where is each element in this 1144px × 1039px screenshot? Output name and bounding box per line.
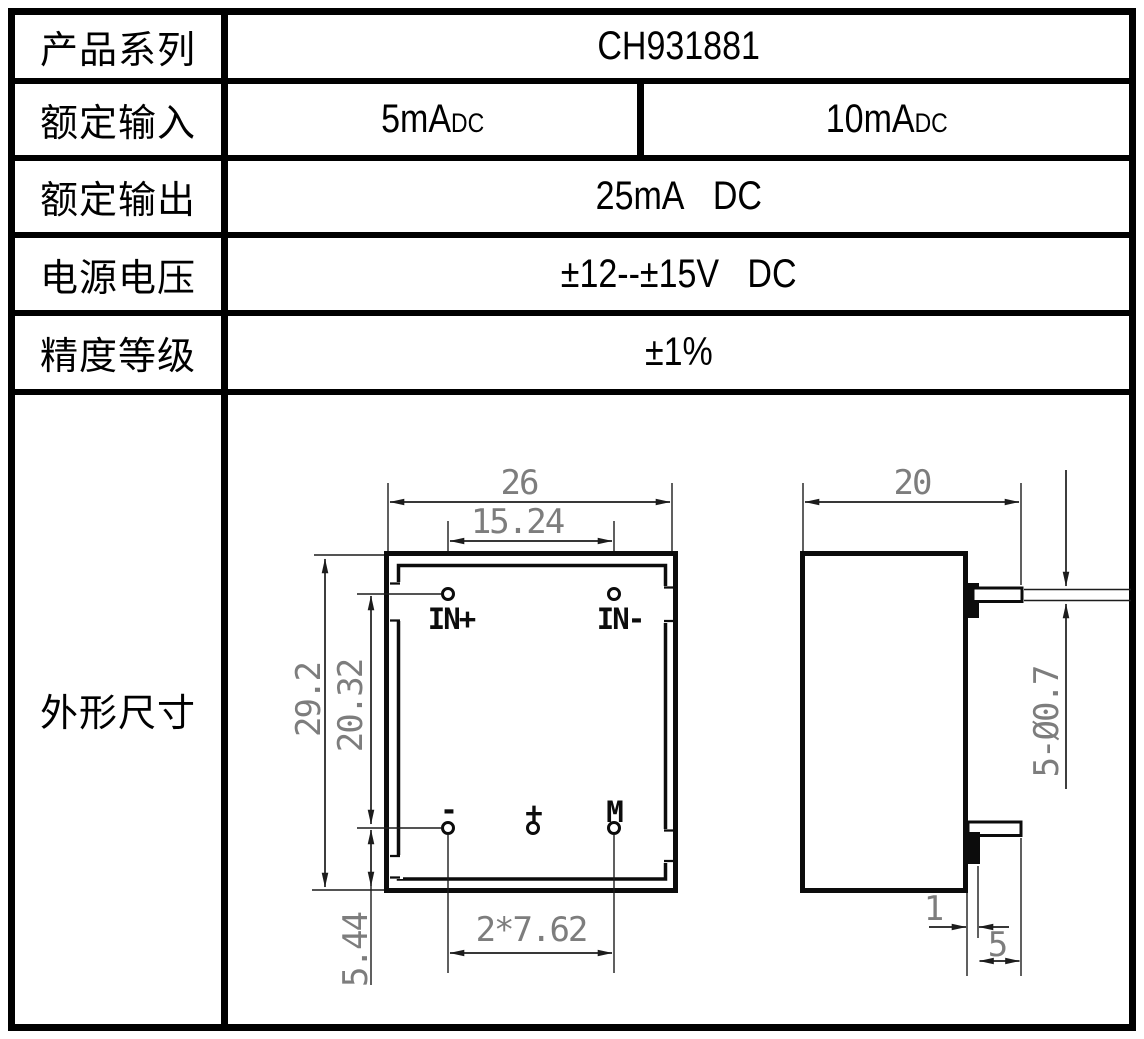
datasheet-page: 产品系列 额定输入 额定输出 电源电压 精度等级 外形尺寸 CH931881 5… [0, 0, 1144, 1039]
pin-label-m: M [606, 795, 623, 829]
front-top-pitch-dim-label: 15.24 [471, 502, 564, 542]
side-pin-offset-dim-label: 1 [924, 889, 943, 929]
side-pin-spec-dim-label: 5-Ø0.7 [1027, 667, 1067, 778]
front-view: 26 15.24 [289, 463, 676, 987]
outline-dimension-drawing: 26 15.24 [0, 0, 1144, 1039]
pin-hole-in-plus [443, 589, 454, 600]
front-bottom-offset-dim-label: 5.44 [336, 913, 376, 987]
side-top-pin [973, 588, 1022, 602]
front-bottom-pitch-dim-label: 2*7.62 [476, 910, 587, 950]
side-view: 20 5-Ø0.7 1 5 [803, 463, 1132, 976]
front-pin-gap-dim-label: 20.32 [331, 660, 371, 752]
pin-label-in-minus: IN- [597, 602, 643, 636]
side-depth-dim-label: 20 [894, 463, 931, 503]
side-body-outline [803, 554, 966, 891]
side-pin-length-dim-label: 5 [988, 925, 1006, 965]
front-height-dim-label: 29.2 [289, 663, 329, 737]
pin-label-neg: - [440, 793, 455, 827]
pin-hole-in-minus [609, 589, 620, 600]
pin-label-pos: + [525, 796, 542, 830]
front-width-dim-label: 26 [501, 463, 538, 503]
pin-label-in-plus: IN+ [428, 602, 476, 636]
